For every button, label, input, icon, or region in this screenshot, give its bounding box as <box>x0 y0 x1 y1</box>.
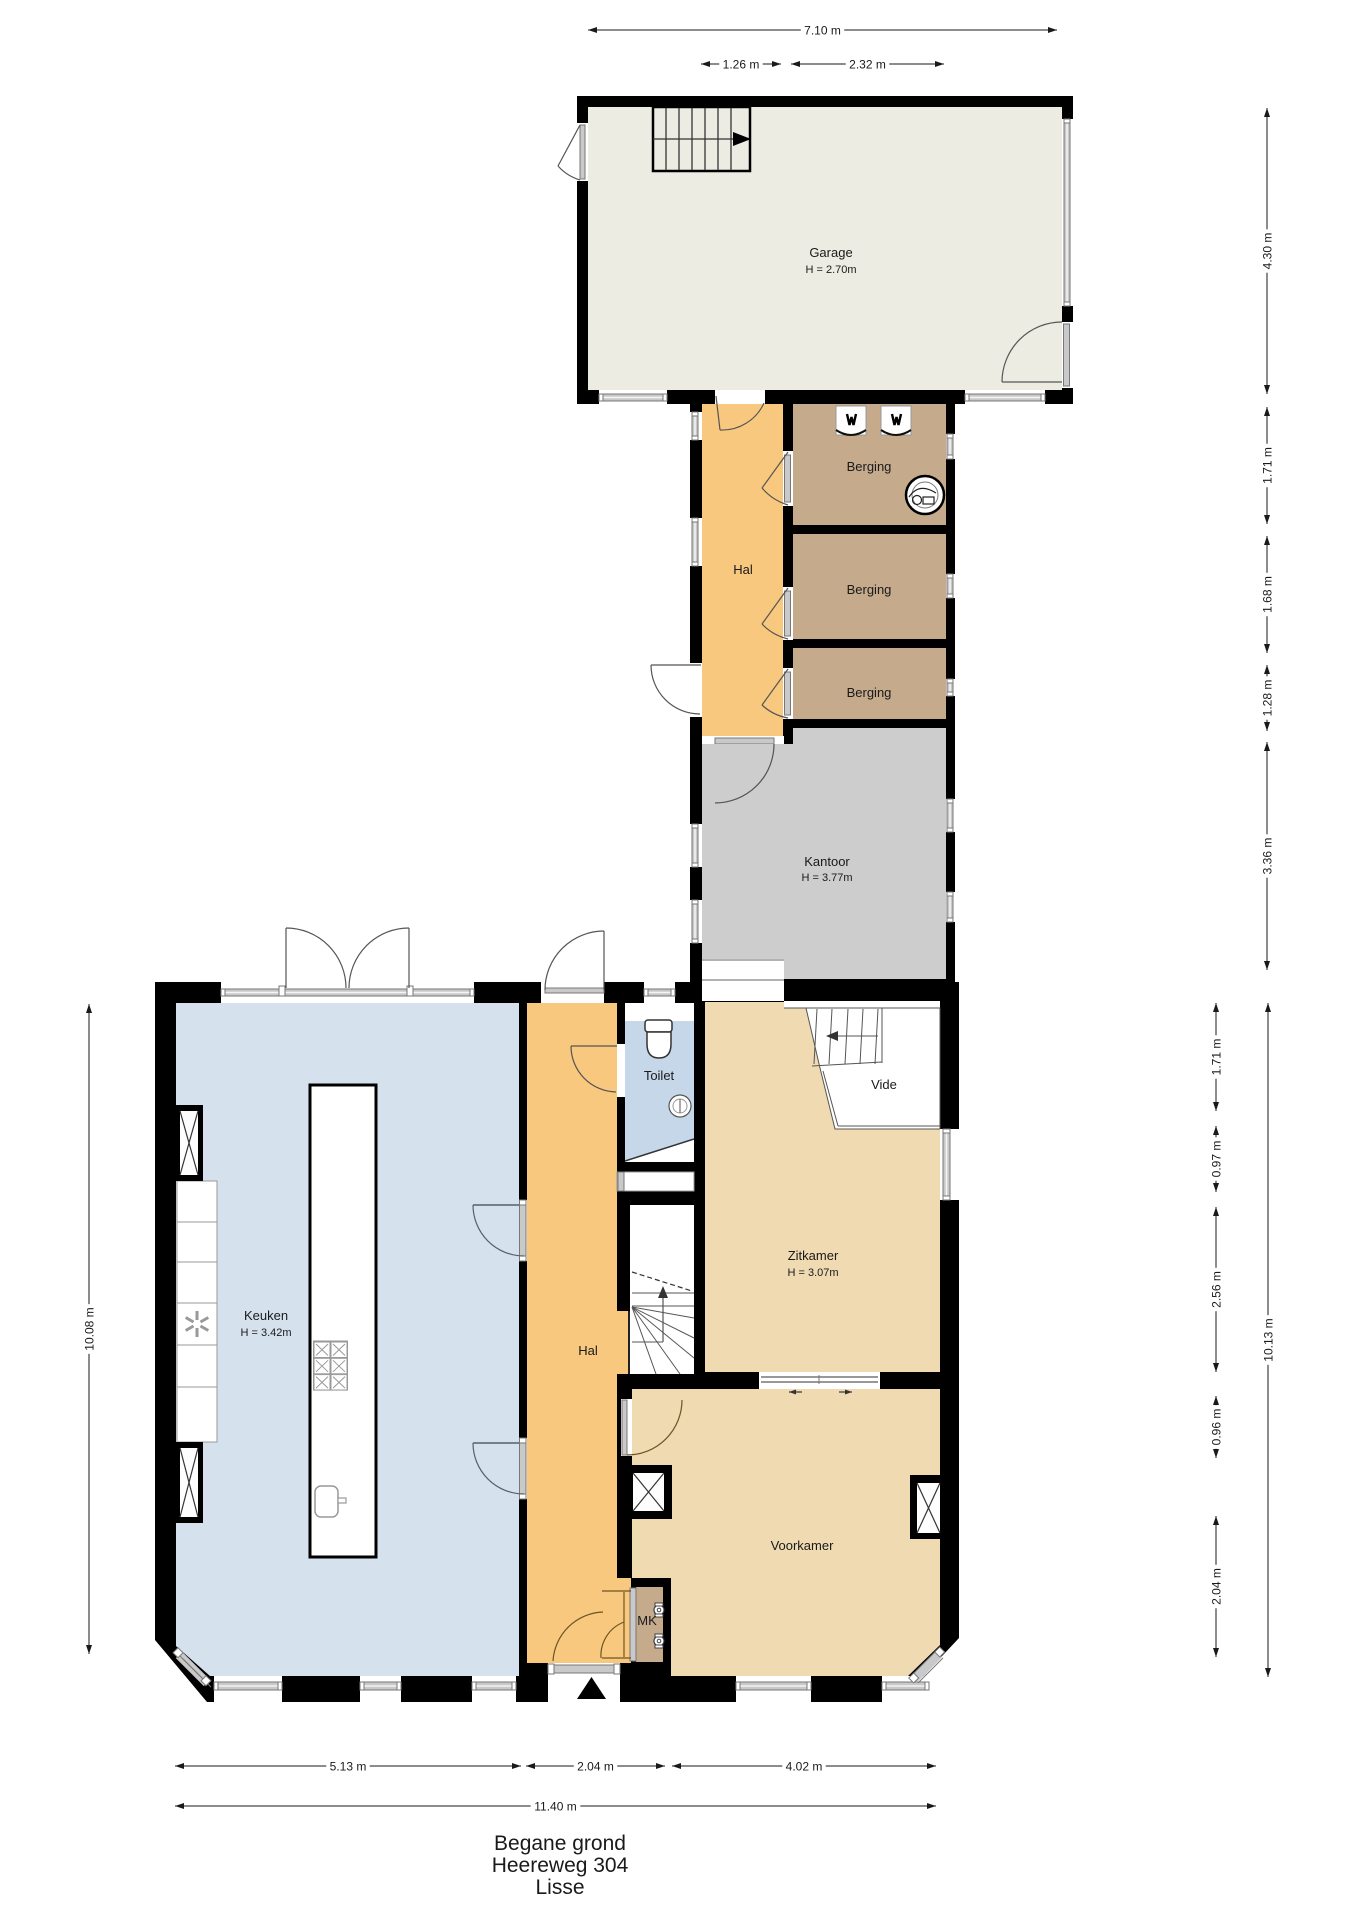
svg-text:2.56 m: 2.56 m <box>1210 1271 1224 1308</box>
svg-text:1.26 m: 1.26 m <box>723 58 760 72</box>
svg-text:Berging: Berging <box>847 459 892 474</box>
svg-text:Heereweg 304: Heereweg 304 <box>492 1854 629 1877</box>
svg-text:Garage: Garage <box>809 245 852 260</box>
svg-text:2.04 m: 2.04 m <box>1210 1568 1224 1605</box>
svg-text:Toilet: Toilet <box>644 1068 675 1083</box>
svg-text:MK: MK <box>637 1613 657 1628</box>
svg-text:Berging: Berging <box>847 582 892 597</box>
svg-text:5.13 m: 5.13 m <box>330 1760 367 1774</box>
svg-text:10.08 m: 10.08 m <box>83 1307 97 1350</box>
svg-text:10.13 m: 10.13 m <box>1262 1318 1276 1361</box>
svg-text:2.32 m: 2.32 m <box>849 58 886 72</box>
svg-text:2.04 m: 2.04 m <box>577 1760 614 1774</box>
svg-text:H = 2.70m: H = 2.70m <box>805 264 856 276</box>
svg-text:H = 3.42m: H = 3.42m <box>240 1327 291 1339</box>
svg-text:1.68 m: 1.68 m <box>1261 576 1275 613</box>
svg-text:Lisse: Lisse <box>535 1876 584 1899</box>
svg-text:Hal: Hal <box>578 1343 598 1358</box>
svg-text:Vide: Vide <box>871 1077 897 1092</box>
svg-text:Hal: Hal <box>733 562 753 577</box>
svg-text:3.36 m: 3.36 m <box>1261 838 1275 875</box>
svg-text:4.02 m: 4.02 m <box>786 1760 823 1774</box>
svg-text:0.96 m: 0.96 m <box>1210 1409 1224 1446</box>
svg-text:Keuken: Keuken <box>244 1308 288 1323</box>
svg-text:Berging: Berging <box>847 685 892 700</box>
svg-text:1.71 m: 1.71 m <box>1261 447 1275 484</box>
svg-text:Kantoor: Kantoor <box>804 854 850 869</box>
svg-text:1.71 m: 1.71 m <box>1210 1039 1224 1076</box>
svg-text:4.30 m: 4.30 m <box>1261 233 1275 270</box>
svg-text:Zitkamer: Zitkamer <box>788 1248 839 1263</box>
svg-text:7.10 m: 7.10 m <box>804 24 841 38</box>
svg-text:Voorkamer: Voorkamer <box>771 1538 835 1553</box>
svg-text:11.40 m: 11.40 m <box>534 1800 576 1814</box>
svg-text:Begane grond: Begane grond <box>494 1832 626 1855</box>
svg-text:H = 3.77m: H = 3.77m <box>801 872 852 884</box>
svg-text:0.97 m: 0.97 m <box>1210 1141 1224 1178</box>
svg-text:1.28 m: 1.28 m <box>1261 680 1275 717</box>
svg-text:H = 3.07m: H = 3.07m <box>787 1267 838 1279</box>
